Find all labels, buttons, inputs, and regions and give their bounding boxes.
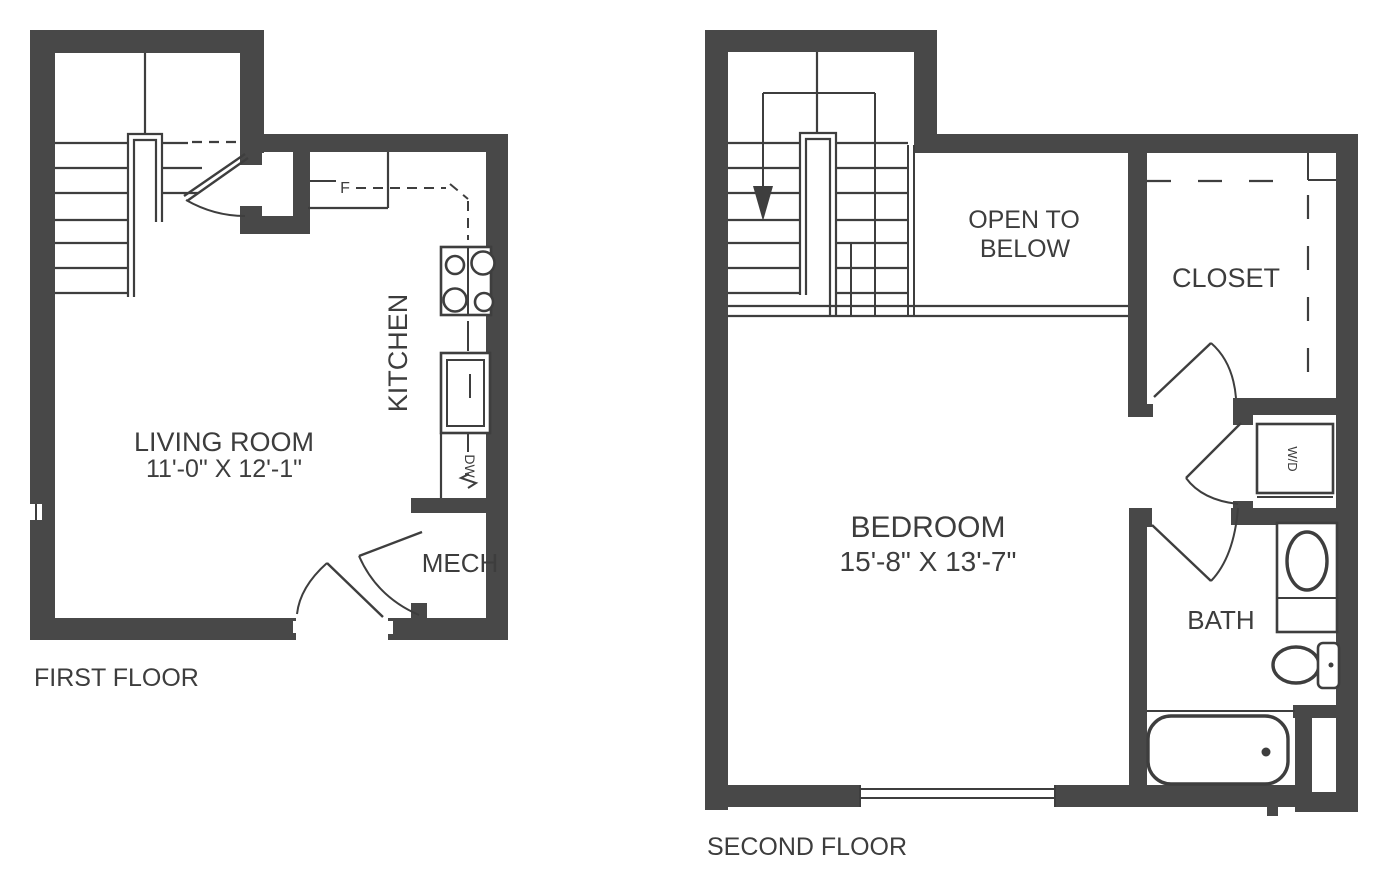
patio-door bbox=[297, 563, 383, 617]
door-jamb-cut bbox=[293, 621, 298, 633]
door-leaf bbox=[327, 563, 383, 617]
washer-dryer-label: W/D bbox=[1285, 446, 1300, 471]
wall-segment bbox=[705, 30, 728, 810]
wall-segment bbox=[293, 152, 310, 234]
bedroom-window bbox=[860, 785, 1055, 807]
stair-handrail bbox=[800, 133, 914, 317]
door-leaf bbox=[359, 532, 422, 556]
wall-segment bbox=[258, 134, 508, 152]
door-jamb-cut bbox=[388, 621, 393, 634]
laundry-area: W/D bbox=[1186, 423, 1333, 504]
tub-drain bbox=[1262, 748, 1271, 757]
wall-segment bbox=[1128, 404, 1153, 417]
second-floor-label: SECOND FLOOR bbox=[707, 833, 907, 861]
wall-segment bbox=[30, 30, 55, 640]
bedroom-dimensions: 15'-8" X 13'-7" bbox=[840, 546, 1017, 577]
wall-segment bbox=[1129, 527, 1147, 787]
bath-label: BATH bbox=[1187, 605, 1254, 635]
bathroom-sink-vanity bbox=[1277, 523, 1337, 632]
wall-segment bbox=[388, 618, 508, 640]
door-leaf bbox=[184, 154, 245, 196]
refrigerator-label: F bbox=[340, 180, 350, 197]
stair-treads bbox=[55, 142, 242, 293]
door-leaf bbox=[1186, 423, 1241, 478]
door-swing-arc bbox=[359, 556, 419, 615]
stair-handrail bbox=[128, 134, 162, 297]
laundry-door bbox=[1186, 423, 1241, 504]
open-to-below-label-line2: BELOW bbox=[980, 235, 1071, 263]
entry-door bbox=[184, 154, 248, 216]
first-floor-plan: F DW KITCH bbox=[30, 30, 508, 692]
bath-door bbox=[1152, 508, 1238, 581]
door-swing-arc bbox=[186, 200, 245, 216]
open-to-below-railing bbox=[728, 306, 1128, 316]
wall-segment bbox=[1336, 134, 1358, 812]
mech-room-label: MECH bbox=[422, 548, 499, 578]
wall-segment bbox=[1055, 785, 1295, 807]
kitchen-sink-symbol bbox=[441, 353, 490, 433]
stair-treads bbox=[728, 143, 908, 316]
second-floor-plan: CLOSET W/D bbox=[705, 30, 1358, 861]
arrowhead bbox=[753, 186, 773, 221]
bedroom-label: BEDROOM bbox=[850, 511, 1005, 544]
closet-label: CLOSET bbox=[1172, 263, 1280, 293]
wall-segment bbox=[705, 30, 937, 52]
mech-room: MECH bbox=[359, 532, 498, 615]
open-to-below-label-line1: OPEN TO bbox=[968, 206, 1080, 234]
door-leaf bbox=[1152, 525, 1211, 581]
floor-plan-page: F DW KITCH bbox=[0, 0, 1389, 885]
first-floor-label: FIRST FLOOR bbox=[34, 664, 199, 692]
closet-door bbox=[1154, 343, 1236, 398]
wall-segment bbox=[30, 30, 263, 53]
wall-segment bbox=[30, 618, 296, 640]
upper-cabinet-dashed-line bbox=[356, 184, 468, 240]
stove-symbol bbox=[441, 247, 495, 315]
wall-segment bbox=[1295, 792, 1358, 812]
wall-segment bbox=[1233, 398, 1336, 415]
closet-area: CLOSET bbox=[1147, 153, 1336, 398]
washer-dryer-symbol: W/D bbox=[1257, 424, 1333, 497]
bathtub-symbol bbox=[1147, 711, 1295, 784]
wall-segment bbox=[1267, 807, 1278, 816]
stair-down-arrow bbox=[753, 93, 875, 316]
wall-segment bbox=[1129, 508, 1152, 527]
wall-segment bbox=[1295, 705, 1312, 793]
door-swing-arc bbox=[297, 563, 327, 614]
door-swing-arc bbox=[1211, 343, 1236, 398]
wall-segment bbox=[1128, 153, 1147, 409]
living-room-label: LIVING ROOM bbox=[134, 427, 314, 457]
door-swing-arc bbox=[1186, 478, 1238, 504]
kitchen-area: F DW KITCH bbox=[308, 152, 495, 498]
wall-segment bbox=[411, 498, 486, 513]
wall-segment bbox=[914, 134, 1338, 153]
floor-plan-drawing: F DW KITCH bbox=[0, 0, 1389, 885]
wall-segment bbox=[411, 603, 427, 618]
door-leaf bbox=[1154, 343, 1211, 397]
dishwasher-label: DW bbox=[462, 454, 478, 478]
wall-segment bbox=[705, 785, 860, 807]
toilet-symbol bbox=[1273, 643, 1339, 688]
kitchen-label: KITCHEN bbox=[383, 294, 413, 413]
wall-segment bbox=[1233, 413, 1253, 425]
door-leaf bbox=[187, 158, 248, 201]
living-room-dimensions: 11'-0" X 12'-1" bbox=[146, 455, 302, 483]
